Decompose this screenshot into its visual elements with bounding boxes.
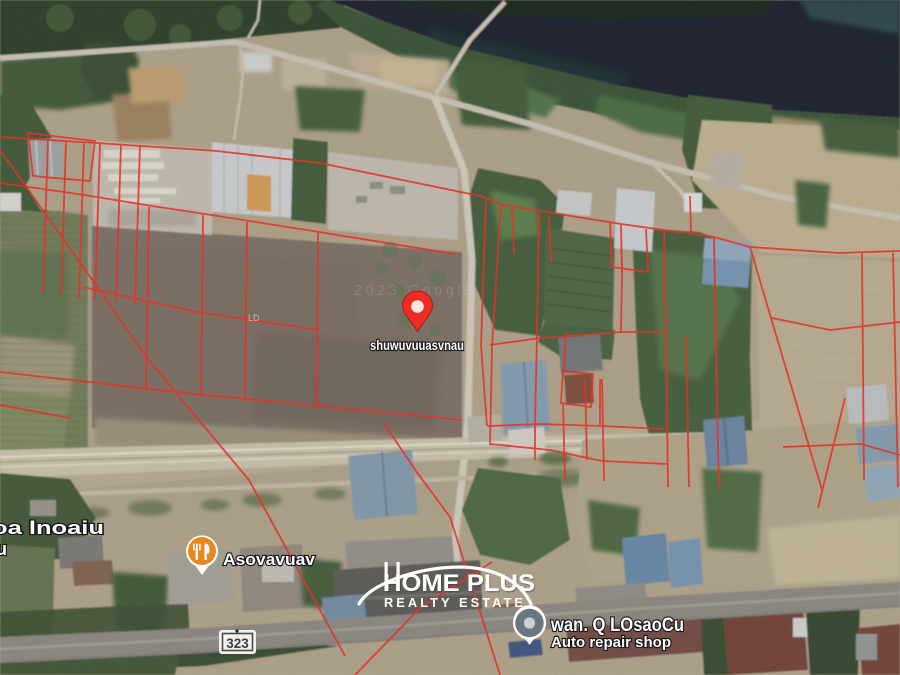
svg-text:oa lnoaiu: oa lnoaiu (0, 518, 104, 538)
svg-text:u: u (0, 539, 7, 559)
svg-text:Asovavuav: Asovavuav (223, 550, 316, 569)
svg-text:wan. Q LOsaoCu: wan. Q LOsaoCu (550, 615, 684, 636)
svg-text:REALTY ESTATE: REALTY ESTATE (384, 596, 526, 610)
svg-text:LD: LD (248, 313, 260, 323)
svg-text:shuwuvuuasvnau: shuwuvuuasvnau (370, 338, 464, 353)
svg-text:Auto repair shop: Auto repair shop (551, 634, 671, 651)
svg-text:323: 323 (226, 636, 249, 651)
